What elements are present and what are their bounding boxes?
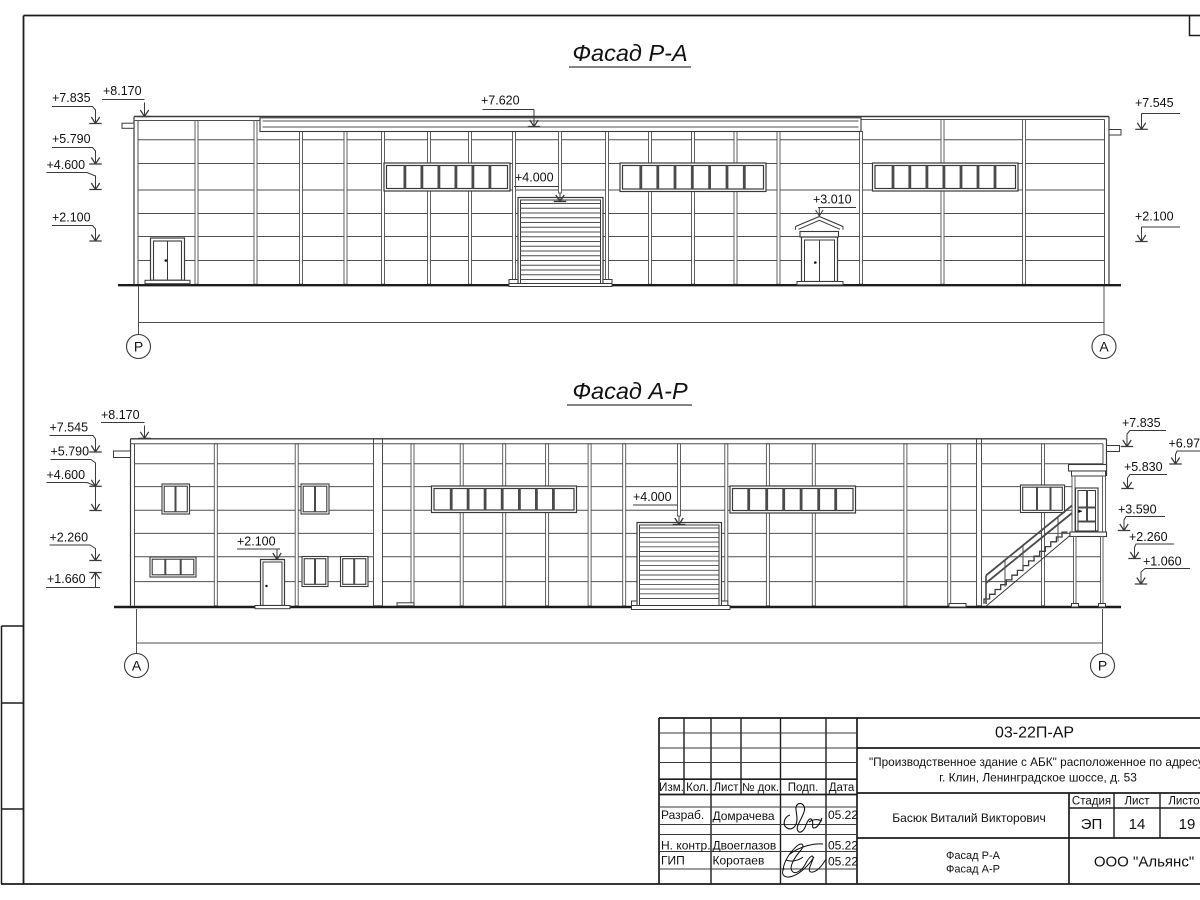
svg-text:Кол.: Кол. — [686, 782, 709, 794]
svg-text:+2.260: +2.260 — [50, 531, 89, 545]
svg-text:Р: Р — [1098, 658, 1107, 674]
svg-text:+1.060: +1.060 — [1143, 555, 1182, 569]
svg-text:Домрачева: Домрачева — [713, 809, 775, 823]
svg-text:Разраб.: Разраб. — [661, 808, 704, 822]
svg-text:А: А — [1099, 339, 1109, 355]
svg-text:+5.790: +5.790 — [52, 132, 91, 146]
svg-text:+5.830: +5.830 — [1124, 460, 1163, 474]
svg-text:ГИП: ГИП — [661, 854, 685, 868]
svg-text:+8.170: +8.170 — [103, 84, 142, 98]
svg-text:Фасад А-Р: Фасад А-Р — [946, 864, 1000, 876]
svg-text:+2.260: +2.260 — [1129, 530, 1168, 544]
svg-text:Лист: Лист — [714, 782, 740, 794]
svg-text:+3.010: +3.010 — [813, 193, 852, 207]
svg-text:"Производственное здание с АБК: "Производственное здание с АБК" располож… — [869, 755, 1200, 769]
svg-text:+4.600: +4.600 — [47, 468, 86, 482]
svg-text:Н. контр.: Н. контр. — [661, 839, 711, 853]
svg-text:Коротаев: Коротаев — [713, 854, 765, 868]
svg-text:+3.590: +3.590 — [1118, 503, 1157, 517]
svg-text:Фасад Р-А: Фасад Р-А — [946, 850, 1001, 862]
svg-text:№ док.: № док. — [742, 782, 779, 794]
svg-text:ЭП: ЭП — [1081, 816, 1103, 833]
svg-text:+4.000: +4.000 — [633, 490, 672, 504]
svg-text:Фасад А-Р: Фасад А-Р — [572, 378, 688, 404]
svg-text:Дата: Дата — [829, 782, 855, 794]
svg-text:+8.170: +8.170 — [101, 408, 140, 422]
svg-text:Р: Р — [134, 339, 143, 355]
svg-text:+7.545: +7.545 — [50, 421, 89, 435]
svg-text:Фасад Р-А: Фасад Р-А — [572, 40, 687, 66]
svg-text:14: 14 — [1129, 816, 1146, 833]
svg-text:Стадия: Стадия — [1072, 796, 1111, 808]
svg-text:ООО "Альянс": ООО "Альянс" — [1094, 854, 1194, 871]
svg-text:19: 19 — [1179, 816, 1196, 833]
svg-text:Листов: Листов — [1168, 796, 1200, 808]
svg-text:+4.600: +4.600 — [47, 158, 86, 172]
svg-text:Подп.: Подп. — [788, 782, 819, 794]
svg-text:05.22: 05.22 — [828, 808, 858, 822]
svg-text:+7.835: +7.835 — [52, 91, 91, 105]
svg-text:А: А — [132, 658, 142, 674]
svg-text:+2.100: +2.100 — [52, 211, 91, 225]
svg-text:+6.970: +6.970 — [1169, 437, 1200, 451]
svg-text:05.22: 05.22 — [828, 839, 858, 853]
svg-text:г. Клин, Ленинградское шоссе,: г. Клин, Ленинградское шоссе, д. 53 — [939, 771, 1137, 785]
svg-text:+2.100: +2.100 — [237, 535, 276, 549]
svg-text:Изм.: Изм. — [659, 782, 684, 794]
svg-text:05.22: 05.22 — [828, 855, 858, 869]
svg-text:+5.790: +5.790 — [51, 445, 90, 459]
svg-text:+7.620: +7.620 — [481, 94, 520, 108]
svg-text:+7.835: +7.835 — [1122, 416, 1161, 430]
svg-text:03-22П-АР: 03-22П-АР — [995, 725, 1074, 742]
svg-text:+4.000: +4.000 — [515, 171, 554, 185]
svg-text:Басюк Виталий Викторович: Басюк Виталий Викторович — [892, 811, 1045, 825]
svg-text:Лист: Лист — [1125, 796, 1151, 808]
svg-text:Двоеглазов: Двоеглазов — [713, 839, 777, 853]
svg-text:+1.660: +1.660 — [47, 572, 86, 586]
svg-text:+2.100: +2.100 — [1135, 210, 1174, 224]
svg-text:+7.545: +7.545 — [1135, 96, 1174, 110]
